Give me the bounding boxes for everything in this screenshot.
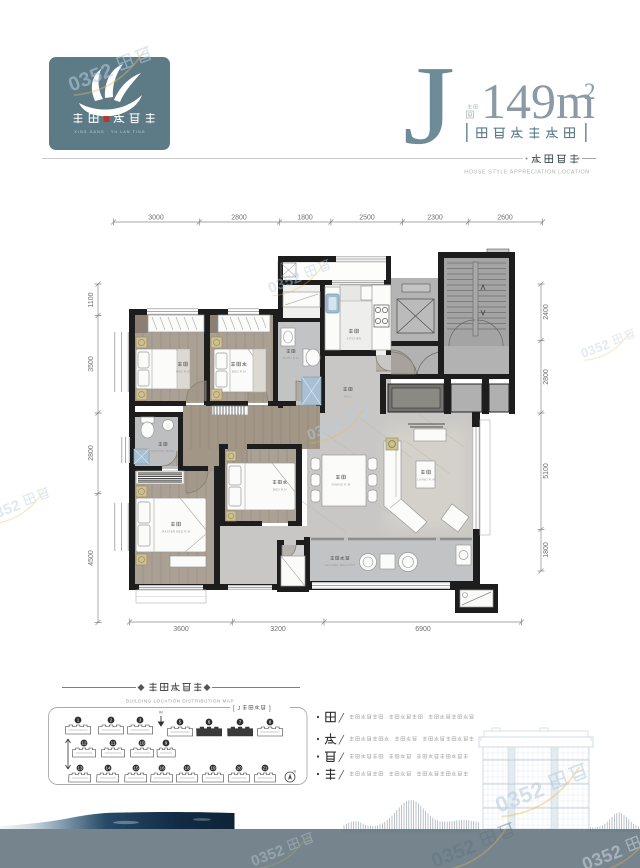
svg-text:N: N — [294, 770, 297, 774]
svg-text:BATH R.M: BATH R.M — [283, 356, 299, 360]
svg-text:11: 11 — [111, 741, 116, 746]
svg-text:149m: 149m — [481, 73, 595, 129]
svg-text:J: J — [238, 706, 241, 712]
svg-text:2800: 2800 — [88, 445, 95, 461]
svg-text:0352: 0352 — [0, 497, 23, 525]
svg-text:/: / — [338, 733, 345, 749]
svg-text:3000: 3000 — [148, 215, 164, 222]
svg-text:16: 16 — [159, 766, 165, 771]
svg-text:HOUSE STYLE APPRECIATION LOCAT: HOUSE STYLE APPRECIATION LOCATION — [464, 170, 589, 176]
svg-text:HALL: HALL — [344, 394, 352, 398]
svg-text:KITCHEN: KITCHEN — [347, 337, 362, 341]
svg-text:12: 12 — [81, 741, 87, 746]
svg-text:BED R.M: BED R.M — [176, 370, 190, 374]
svg-text:3: 3 — [139, 718, 142, 723]
svg-text:2600: 2600 — [497, 215, 513, 222]
svg-text:/: / — [338, 768, 345, 784]
svg-text:1: 1 — [77, 718, 80, 723]
svg-text:5100: 5100 — [543, 463, 550, 479]
svg-text:3600: 3600 — [173, 626, 189, 633]
svg-text:6900: 6900 — [415, 626, 431, 633]
svg-text:8: 8 — [269, 720, 272, 725]
svg-text:/: / — [338, 750, 345, 766]
svg-text:2500: 2500 — [359, 215, 375, 222]
svg-text:14: 14 — [105, 766, 111, 771]
svg-text:15: 15 — [133, 766, 139, 771]
svg-text:2800: 2800 — [543, 369, 550, 385]
svg-text:XING GANG · YU LAN TING: XING GANG · YU LAN TING — [74, 130, 145, 134]
svg-text:0352: 0352 — [579, 336, 612, 361]
svg-text:18: 18 — [184, 766, 190, 771]
svg-text:3200: 3200 — [270, 626, 286, 633]
svg-text:LIVING R.M: LIVING R.M — [417, 478, 435, 482]
svg-text:MASTER BATH: MASTER BATH — [151, 449, 174, 453]
svg-text:9: 9 — [165, 741, 168, 746]
svg-text:LEISURE BALCONY: LEISURE BALCONY — [324, 563, 355, 567]
svg-text:Rd: Rd — [159, 711, 163, 715]
svg-text:3500: 3500 — [88, 356, 95, 372]
svg-text:/: / — [338, 711, 345, 727]
svg-text:1800: 1800 — [297, 215, 313, 222]
svg-text:13: 13 — [77, 766, 83, 771]
svg-text:5: 5 — [179, 720, 182, 725]
svg-text:2: 2 — [584, 79, 596, 104]
svg-text:DINING R.M: DINING R.M — [332, 483, 351, 487]
svg-text:1800: 1800 — [543, 542, 550, 558]
svg-text:6: 6 — [208, 720, 211, 725]
svg-text:21: 21 — [262, 766, 268, 771]
svg-text:10: 10 — [139, 741, 145, 746]
svg-text:J: J — [403, 43, 455, 168]
svg-text:2: 2 — [110, 718, 113, 723]
svg-text:2400: 2400 — [543, 304, 550, 320]
svg-text:19: 19 — [210, 766, 216, 771]
svg-text:BUILDING LOCATION DISTRIBUTION: BUILDING LOCATION DISTRIBUTION MAP — [126, 699, 234, 704]
svg-text:2800: 2800 — [231, 215, 247, 222]
svg-text:BED R.M: BED R.M — [273, 487, 287, 491]
svg-text:BED R.M: BED R.M — [232, 370, 246, 374]
svg-text:2300: 2300 — [427, 215, 443, 222]
svg-text:20: 20 — [236, 766, 242, 771]
svg-text:1100: 1100 — [88, 292, 95, 307]
svg-text:MASTER BED R.M: MASTER BED R.M — [162, 530, 191, 534]
svg-text:4500: 4500 — [88, 550, 95, 566]
svg-text:7: 7 — [239, 720, 242, 725]
